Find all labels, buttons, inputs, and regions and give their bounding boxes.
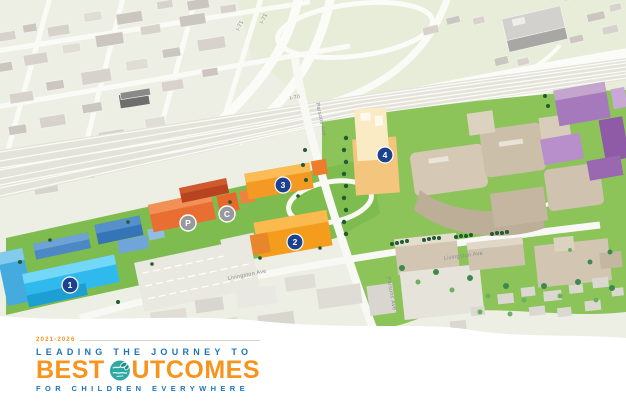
marker-3: 3	[275, 177, 291, 193]
logo-best-text: BEST	[36, 358, 105, 382]
logo-outcomes-text: UTCOMES	[132, 358, 261, 382]
svg-text:2: 2	[293, 237, 298, 247]
marker-2: 2	[287, 234, 303, 250]
logo-rule	[80, 340, 261, 341]
marker-1: 1	[62, 277, 78, 293]
svg-text:1: 1	[68, 280, 73, 290]
svg-text:3: 3	[281, 180, 286, 190]
svg-text:P: P	[185, 218, 191, 228]
marker-4: 4	[377, 147, 393, 163]
page: I-71 I-71 I-70 Parsons Ave Parsons Ave L…	[0, 0, 626, 416]
logo-years: 2021-2026	[36, 337, 76, 343]
svg-text:4: 4	[383, 150, 388, 160]
marker-parking: P	[180, 215, 196, 231]
globe-butterfly-icon	[109, 359, 131, 382]
marker-c: C	[219, 206, 235, 222]
svg-text:C: C	[224, 209, 230, 219]
logo-best-outcomes: 2021-2026 LEADING THE JOURNEY TO BEST UT…	[36, 336, 260, 393]
logo-wordmark: BEST UTCOMES	[36, 358, 260, 382]
campus-map-illustration: I-71 I-71 I-70 Parsons Ave Parsons Ave L…	[0, 0, 626, 346]
logo-tagline-bottom: FOR CHILDREN EVERYWHERE	[36, 384, 260, 393]
